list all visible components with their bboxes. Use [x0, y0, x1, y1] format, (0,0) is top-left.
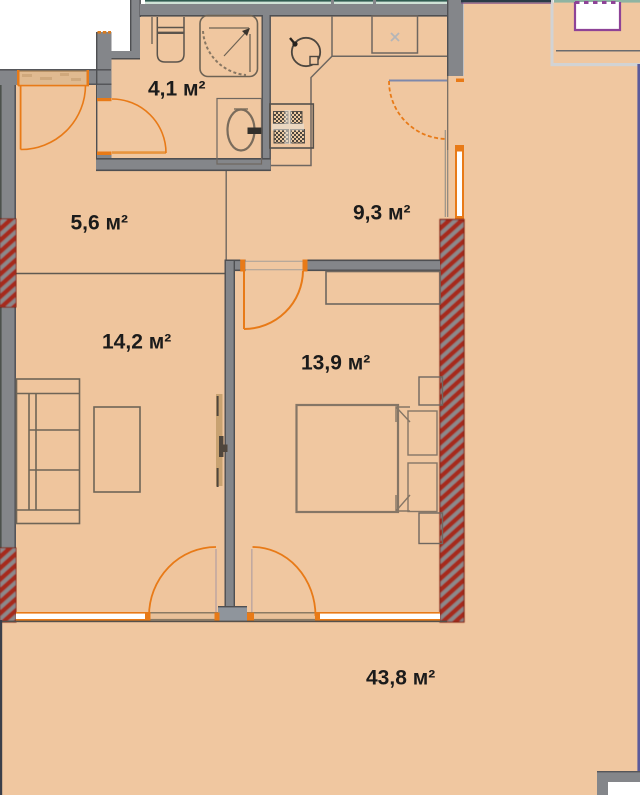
svg-text:9,3 м²: 9,3 м² — [353, 202, 411, 225]
svg-text:43,8 м²: 43,8 м² — [366, 667, 435, 690]
svg-text:13,9 м²: 13,9 м² — [301, 352, 370, 375]
svg-text:14,2 м²: 14,2 м² — [102, 331, 171, 354]
svg-text:4,1 м²: 4,1 м² — [148, 78, 206, 101]
svg-text:5,6 м²: 5,6 м² — [71, 212, 129, 235]
